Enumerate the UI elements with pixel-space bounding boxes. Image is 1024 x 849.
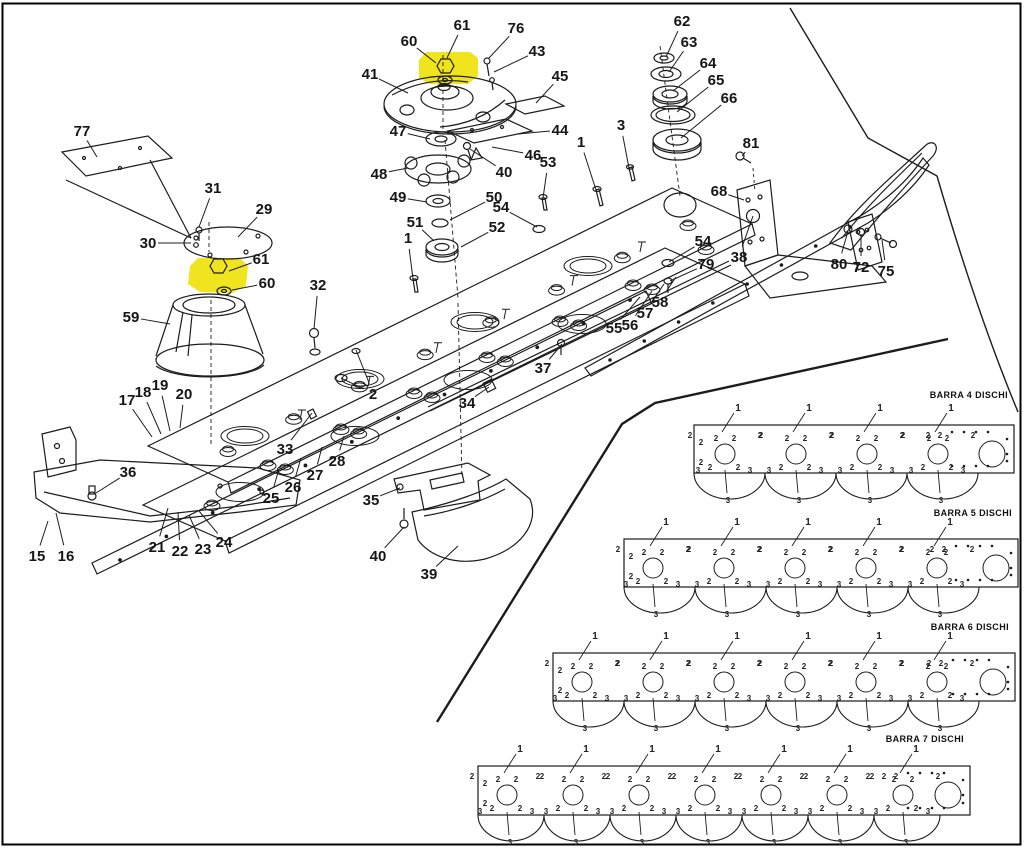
part-number-1: 1 xyxy=(577,134,585,151)
disc-marker-2: 2 xyxy=(873,662,878,671)
disc-marker-3: 3 xyxy=(904,838,909,847)
callout-leader-line xyxy=(408,199,427,202)
callout-part-49: 49 xyxy=(390,189,427,206)
disc-marker-3: 3 xyxy=(837,580,842,589)
part-number-63: 63 xyxy=(681,34,698,51)
disc-marker-2: 2 xyxy=(646,775,651,784)
barra-5-dischi-diagram: BARRA 5 DISCHI22122222233312222223331222… xyxy=(616,508,1018,619)
disc-marker-3: 3 xyxy=(838,466,843,475)
disc-hole xyxy=(695,785,715,805)
disc-marker-2: 2 xyxy=(650,804,655,813)
part-number-62: 62 xyxy=(674,13,691,30)
disc-marker-2: 2 xyxy=(642,548,647,557)
disc-marker-2: 2 xyxy=(694,775,699,784)
callout-leader-line xyxy=(492,147,523,153)
disc-marker-2: 2 xyxy=(855,662,860,671)
disc-marker-3: 3 xyxy=(908,694,913,703)
disc-marker-3: 3 xyxy=(725,610,730,619)
callout-leader-line xyxy=(141,319,170,324)
edge-marker: 2 xyxy=(629,572,634,581)
disc-hole xyxy=(785,558,805,578)
disc-marker-2: 2 xyxy=(948,577,953,586)
disc-hole xyxy=(714,558,734,578)
part-number-40: 40 xyxy=(370,548,387,565)
disc-marker-2: 2 xyxy=(660,662,665,671)
callout-part-81: 81 xyxy=(742,135,759,156)
disc-marker-3: 3 xyxy=(544,807,549,816)
callout-leader-line xyxy=(409,249,413,279)
disc-marker-2: 2 xyxy=(874,434,879,443)
disc-marker-3: 3 xyxy=(728,807,733,816)
disc-marker-3: 3 xyxy=(508,838,513,847)
callout-part-19: 19 xyxy=(152,377,170,431)
disc-marker-3: 3 xyxy=(867,724,872,733)
callout-part-20: 20 xyxy=(176,386,193,428)
part-number-66: 66 xyxy=(721,90,738,107)
disc-marker-2: 2 xyxy=(571,662,576,671)
edge-marker: 2 xyxy=(882,772,887,781)
part-number-31: 31 xyxy=(205,180,222,197)
part-number-64: 64 xyxy=(700,55,717,72)
callout-leader-line xyxy=(178,512,179,540)
disc-marker-2: 2 xyxy=(688,804,693,813)
disc-marker-3: 3 xyxy=(939,496,944,505)
disc-marker-2: 2 xyxy=(545,659,550,668)
edge-marker: 2 xyxy=(894,772,899,781)
disc-marker-2: 2 xyxy=(920,691,925,700)
callout-part-34: 34 xyxy=(459,387,489,412)
part-number-79: 79 xyxy=(698,256,715,273)
callout-part-1: 1 xyxy=(577,134,596,190)
edge-marker: 2 xyxy=(629,552,634,561)
disc-marker-2: 2 xyxy=(672,772,677,781)
part-number-55: 55 xyxy=(606,320,623,337)
callout-leader-line xyxy=(380,488,400,496)
disc-marker-2: 2 xyxy=(806,577,811,586)
disc-marker-3: 3 xyxy=(838,838,843,847)
part-number-28: 28 xyxy=(329,453,346,470)
part-number-61: 61 xyxy=(454,17,471,34)
boundary-curve xyxy=(790,8,1018,412)
part-number-56: 56 xyxy=(622,317,639,334)
disc-marker-2: 2 xyxy=(660,548,665,557)
disc-marker-2: 2 xyxy=(713,662,718,671)
callout-leader-line xyxy=(882,240,885,260)
part-number-23: 23 xyxy=(195,541,212,558)
disc-marker-2: 2 xyxy=(687,659,692,668)
disc-marker-1: 1 xyxy=(663,631,669,642)
disc-hole xyxy=(629,785,649,805)
disc-hole xyxy=(785,672,805,692)
disc-marker-3: 3 xyxy=(654,610,659,619)
disc-marker-2: 2 xyxy=(712,775,717,784)
disc-marker-2: 2 xyxy=(664,577,669,586)
part-number-76: 76 xyxy=(508,20,525,37)
callout-leader-line xyxy=(96,478,120,493)
disc-marker-3: 3 xyxy=(742,807,747,816)
disc-marker-1: 1 xyxy=(877,403,883,414)
part-number-80: 80 xyxy=(831,256,848,273)
disc-hole xyxy=(856,558,876,578)
disc-marker-2: 2 xyxy=(602,772,607,781)
part-number-22: 22 xyxy=(172,543,189,560)
disc-marker-2: 2 xyxy=(707,577,712,586)
disc-marker-2: 2 xyxy=(628,775,633,784)
callout-leader-line xyxy=(385,527,404,548)
part-number-44: 44 xyxy=(552,122,569,139)
disc-marker-2: 2 xyxy=(758,545,763,554)
disc-marker-2: 2 xyxy=(944,662,949,671)
disc-marker-3: 3 xyxy=(868,496,873,505)
disc-marker-2: 2 xyxy=(850,463,855,472)
disc-hole xyxy=(563,785,583,805)
callout-leader-line xyxy=(422,230,434,241)
disc-marker-2: 2 xyxy=(636,691,641,700)
callout-part-53: 53 xyxy=(540,154,557,198)
disc-marker-2: 2 xyxy=(877,577,882,586)
callout-leader-line xyxy=(470,149,496,166)
disc-marker-3: 3 xyxy=(676,807,681,816)
disc-marker-3: 3 xyxy=(706,838,711,847)
callout-part-76: 76 xyxy=(489,20,524,58)
callout-part-63: 63 xyxy=(669,34,697,72)
disc-marker-1: 1 xyxy=(663,517,669,528)
disc-marker-1: 1 xyxy=(649,744,655,755)
callout-part-68: 68 xyxy=(711,183,744,200)
disc-marker-3: 3 xyxy=(860,807,865,816)
part-number-38: 38 xyxy=(731,249,748,266)
disc-marker-1: 1 xyxy=(583,744,589,755)
edge-marker: 2 xyxy=(558,686,563,695)
barra-label: BARRA 7 DISCHI xyxy=(886,734,964,744)
disc-marker-2: 2 xyxy=(826,775,831,784)
disc-marker-2: 2 xyxy=(948,691,953,700)
disc-marker-2: 2 xyxy=(589,662,594,671)
callout-part-75: 75 xyxy=(878,240,895,280)
disc-marker-2: 2 xyxy=(785,434,790,443)
disc-marker-2: 2 xyxy=(849,577,854,586)
barra-label: BARRA 4 DISCHI xyxy=(930,390,1008,400)
end-hole xyxy=(979,441,1005,467)
disc-marker-2: 2 xyxy=(829,545,834,554)
part-number-32: 32 xyxy=(310,277,327,294)
callout-part-43: 43 xyxy=(494,43,545,72)
disc-marker-3: 3 xyxy=(695,694,700,703)
disc-marker-2: 2 xyxy=(936,772,941,781)
part-number-51: 51 xyxy=(407,214,424,231)
disc-marker-3: 3 xyxy=(748,466,753,475)
edge-marker: 2 xyxy=(927,659,932,668)
disc-marker-3: 3 xyxy=(530,807,535,816)
disc-marker-2: 2 xyxy=(731,662,736,671)
part-number-27: 27 xyxy=(307,467,324,484)
disc-marker-2: 2 xyxy=(848,804,853,813)
disc-marker-3: 3 xyxy=(767,466,772,475)
disc-marker-3: 3 xyxy=(640,838,645,847)
disc-marker-2: 2 xyxy=(870,772,875,781)
disc-marker-2: 2 xyxy=(758,659,763,668)
disc-marker-3: 3 xyxy=(725,724,730,733)
disc-marker-1: 1 xyxy=(805,517,811,528)
callout-leader-line xyxy=(536,84,553,103)
callout-leader-line xyxy=(291,413,312,440)
disc-marker-3: 3 xyxy=(610,807,615,816)
callout-leader-line xyxy=(189,515,199,539)
disc-marker-3: 3 xyxy=(890,466,895,475)
disc-hole xyxy=(761,785,781,805)
callout-leader-line xyxy=(510,212,537,227)
disc-hole xyxy=(927,558,947,578)
disc-marker-3: 3 xyxy=(796,724,801,733)
part-number-25: 25 xyxy=(263,490,280,507)
disc-marker-2: 2 xyxy=(593,691,598,700)
disc-marker-2: 2 xyxy=(518,804,523,813)
part-number-18: 18 xyxy=(135,384,152,401)
disc-marker-2: 2 xyxy=(732,434,737,443)
part-number-61: 61 xyxy=(253,251,270,268)
disc-marker-1: 1 xyxy=(876,631,882,642)
disc-marker-2: 2 xyxy=(736,463,741,472)
disc-marker-2: 2 xyxy=(945,434,950,443)
disc-marker-1: 1 xyxy=(806,403,812,414)
callout-part-77: 77 xyxy=(74,123,97,157)
edge-marker: 2 xyxy=(699,438,704,447)
barra-label: BARRA 6 DISCHI xyxy=(931,622,1009,632)
part-number-75: 75 xyxy=(878,263,895,280)
disc-hole xyxy=(827,785,847,805)
exploded-parts-diagram: 6061764341456263646566474448464053134950… xyxy=(0,0,1024,849)
disc-marker-2: 2 xyxy=(949,463,954,472)
part-number-81: 81 xyxy=(743,135,760,152)
disc-marker-2: 2 xyxy=(778,691,783,700)
part-number-39: 39 xyxy=(421,566,438,583)
callout-leader-line xyxy=(147,402,161,434)
part-number-35: 35 xyxy=(363,492,380,509)
disc-marker-3: 3 xyxy=(766,580,771,589)
disc-marker-3: 3 xyxy=(605,694,610,703)
barra-7-dischi-diagram: BARRA 7 DISCHI22122222233312222223331222… xyxy=(470,734,970,847)
callout-part-30: 30 xyxy=(140,235,191,252)
disc-marker-3: 3 xyxy=(478,807,483,816)
callout-part-41: 41 xyxy=(362,66,408,93)
callout-leader-line xyxy=(623,136,629,168)
callout-leader-line xyxy=(666,31,678,57)
highlight-marks xyxy=(188,52,478,293)
disc-marker-2: 2 xyxy=(782,804,787,813)
disc-hole xyxy=(786,444,806,464)
disc-marker-3: 3 xyxy=(624,580,629,589)
part-number-33: 33 xyxy=(277,441,294,458)
disc-marker-3: 3 xyxy=(676,694,681,703)
disc-marker-2: 2 xyxy=(470,772,475,781)
callout-leader-line xyxy=(199,198,210,227)
callout-part-61: 61 xyxy=(447,17,470,58)
part-number-30: 30 xyxy=(140,235,157,252)
callout-part-48: 48 xyxy=(371,166,408,183)
callout-leader-line xyxy=(379,79,408,93)
disc-hole xyxy=(572,672,592,692)
disc-marker-2: 2 xyxy=(716,804,721,813)
edge-marker: 2 xyxy=(483,779,488,788)
part-number-37: 37 xyxy=(535,360,552,377)
disc-marker-2: 2 xyxy=(878,463,883,472)
part-number-34: 34 xyxy=(459,395,476,412)
disc-marker-3: 3 xyxy=(908,580,913,589)
edge-marker: 2 xyxy=(942,545,947,554)
end-hole xyxy=(935,782,961,808)
disc-marker-3: 3 xyxy=(961,466,966,475)
disc-marker-3: 3 xyxy=(909,466,914,475)
disc-marker-3: 3 xyxy=(726,496,731,505)
disc-marker-2: 2 xyxy=(616,659,621,668)
highlight-part-61-left xyxy=(188,258,248,293)
disc-marker-2: 2 xyxy=(580,775,585,784)
disc-marker-2: 2 xyxy=(807,463,812,472)
disc-marker-2: 2 xyxy=(760,775,765,784)
part-number-65: 65 xyxy=(708,72,725,89)
disc-marker-3: 3 xyxy=(796,610,801,619)
callout-part-35: 35 xyxy=(363,488,400,509)
disc-marker-3: 3 xyxy=(696,466,701,475)
barra-6-dischi-diagram: BARRA 6 DISCHI22122222233312222223331222… xyxy=(545,622,1015,733)
disc-hole xyxy=(856,672,876,692)
disc-marker-2: 2 xyxy=(900,659,905,668)
disc-marker-2: 2 xyxy=(849,691,854,700)
disc-hole xyxy=(715,444,735,464)
part-number-21: 21 xyxy=(149,539,166,556)
disc-marker-3: 3 xyxy=(553,694,558,703)
callout-part-29: 29 xyxy=(238,201,272,237)
disc-marker-2: 2 xyxy=(714,434,719,443)
callout-part-60: 60 xyxy=(401,33,436,63)
disc-marker-2: 2 xyxy=(778,577,783,586)
disc-marker-2: 2 xyxy=(738,772,743,781)
disc-marker-2: 2 xyxy=(830,431,835,440)
part-number-77: 77 xyxy=(74,123,91,140)
disc-marker-2: 2 xyxy=(584,804,589,813)
disc-marker-2: 2 xyxy=(636,577,641,586)
callout-leader-line xyxy=(673,70,700,91)
disc-marker-3: 3 xyxy=(889,694,894,703)
callout-leader-line xyxy=(87,141,97,157)
disc-hole xyxy=(497,785,517,805)
part-number-45: 45 xyxy=(552,68,569,85)
disc-marker-3: 3 xyxy=(624,694,629,703)
disc-marker-2: 2 xyxy=(820,804,825,813)
part-number-72: 72 xyxy=(853,259,870,276)
disc-marker-3: 3 xyxy=(819,466,824,475)
callout-part-1: 1 xyxy=(404,230,413,279)
disc-marker-2: 2 xyxy=(565,691,570,700)
disc-marker-2: 2 xyxy=(910,775,915,784)
part-number-3: 3 xyxy=(617,117,625,134)
callout-part-39: 39 xyxy=(421,546,458,583)
part-number-41: 41 xyxy=(362,66,379,83)
disc-marker-1: 1 xyxy=(947,517,953,528)
disc-marker-3: 3 xyxy=(818,694,823,703)
disc-marker-2: 2 xyxy=(802,662,807,671)
disc-marker-2: 2 xyxy=(886,804,891,813)
callout-part-59: 59 xyxy=(123,309,170,326)
disc-marker-2: 2 xyxy=(866,772,871,781)
part-number-60: 60 xyxy=(259,275,276,292)
callout-part-44: 44 xyxy=(518,122,569,139)
disc-marker-1: 1 xyxy=(847,744,853,755)
disc-marker-3: 3 xyxy=(867,610,872,619)
callout-leader-line xyxy=(461,232,488,247)
disc-marker-2: 2 xyxy=(754,804,759,813)
part-number-40: 40 xyxy=(496,164,513,181)
section-separator-line xyxy=(437,339,948,722)
part-number-20: 20 xyxy=(176,386,193,403)
callout-part-27: 27 xyxy=(307,447,324,484)
barra-variants-section: BARRA 4 DISCHI22122222233312222223331222… xyxy=(470,390,1018,847)
disc-hole xyxy=(857,444,877,464)
callout-part-3: 3 xyxy=(617,117,629,168)
disc-marker-3: 3 xyxy=(747,694,752,703)
callout-part-16: 16 xyxy=(56,513,74,565)
edge-marker: 2 xyxy=(483,799,488,808)
disc-marker-3: 3 xyxy=(747,580,752,589)
edge-marker: 2 xyxy=(558,666,563,675)
callout-part-45: 45 xyxy=(536,68,568,103)
edge-marker: 2 xyxy=(930,545,935,554)
part-number-1: 1 xyxy=(404,230,412,247)
callout-part-52: 52 xyxy=(461,219,505,247)
disc-marker-2: 2 xyxy=(622,804,627,813)
disc-marker-2: 2 xyxy=(688,431,693,440)
disc-marker-2: 2 xyxy=(536,772,541,781)
callout-leader-line xyxy=(665,277,676,293)
disc-marker-3: 3 xyxy=(874,807,879,816)
disc-marker-3: 3 xyxy=(938,724,943,733)
disc-marker-2: 2 xyxy=(855,548,860,557)
disc-marker-3: 3 xyxy=(960,580,965,589)
disc-marker-3: 3 xyxy=(818,580,823,589)
disc-marker-2: 2 xyxy=(920,577,925,586)
disc-marker-1: 1 xyxy=(805,631,811,642)
part-number-47: 47 xyxy=(390,123,407,140)
disc-marker-2: 2 xyxy=(921,463,926,472)
disc-marker-3: 3 xyxy=(583,724,588,733)
edge-marker: 2 xyxy=(938,431,943,440)
part-number-52: 52 xyxy=(489,219,506,236)
part-number-58: 58 xyxy=(652,294,669,311)
disc-marker-2: 2 xyxy=(877,691,882,700)
part-number-49: 49 xyxy=(390,189,407,206)
part-number-29: 29 xyxy=(256,201,273,218)
disc-marker-2: 2 xyxy=(856,434,861,443)
disc-marker-2: 2 xyxy=(687,545,692,554)
callout-leader-line xyxy=(180,405,183,428)
disc-marker-3: 3 xyxy=(808,807,813,816)
disc-marker-2: 2 xyxy=(735,691,740,700)
disc-marker-3: 3 xyxy=(837,694,842,703)
callout-leader-line xyxy=(133,409,152,437)
callout-part-36: 36 xyxy=(96,464,136,493)
disc-marker-2: 2 xyxy=(708,463,713,472)
disc-marker-1: 1 xyxy=(592,631,598,642)
barra-label: BARRA 5 DISCHI xyxy=(934,508,1012,518)
disc-marker-3: 3 xyxy=(596,807,601,816)
part-number-2: 2 xyxy=(369,386,377,403)
disc-marker-3: 3 xyxy=(654,724,659,733)
callout-part-65: 65 xyxy=(677,72,724,112)
disc-marker-2: 2 xyxy=(664,691,669,700)
disc-marker-2: 2 xyxy=(901,431,906,440)
disc-marker-1: 1 xyxy=(948,403,954,414)
disc-marker-2: 2 xyxy=(800,772,805,781)
